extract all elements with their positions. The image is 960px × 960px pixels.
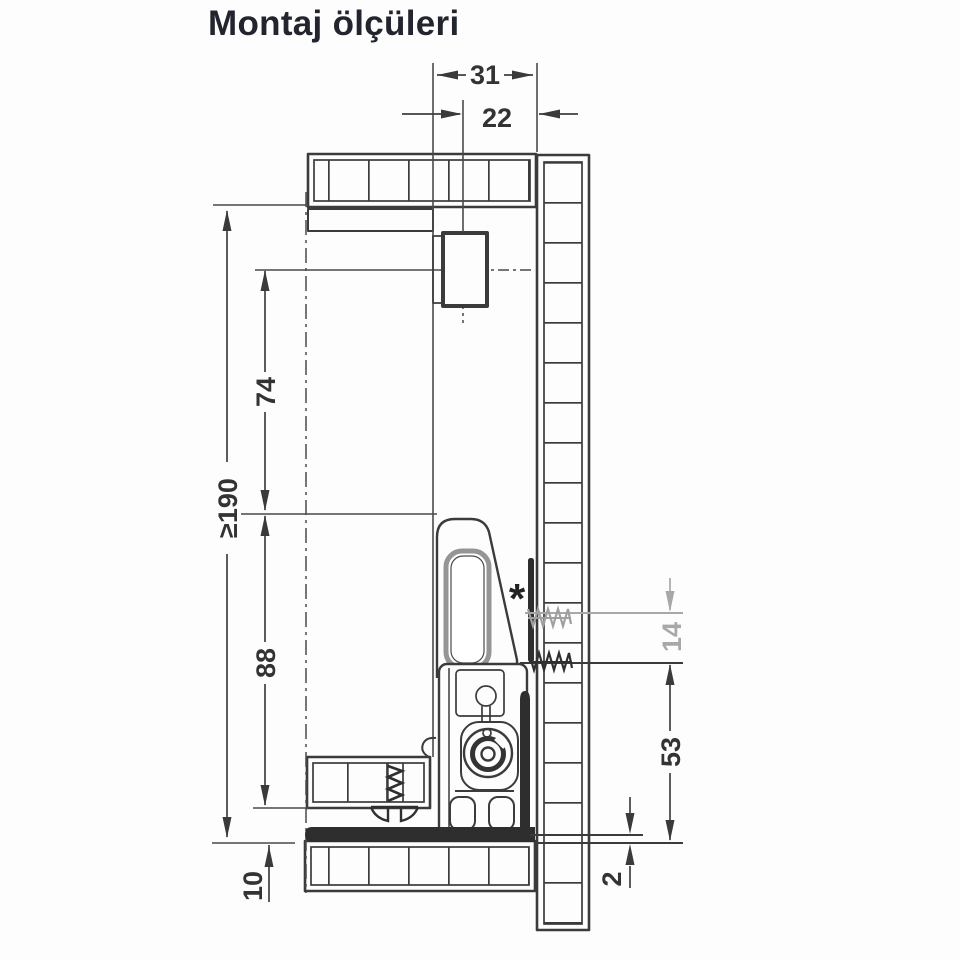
right-panel-hatch <box>544 162 582 924</box>
runner-foot-left <box>450 797 475 830</box>
arrow-up-icon <box>223 210 232 231</box>
footnote-asterisk: * <box>509 575 526 622</box>
drawer-bottom-panel-section <box>307 757 430 808</box>
arrow-up-icon <box>261 270 270 291</box>
runner-front-hook <box>422 738 436 757</box>
arrow-down-icon <box>261 490 270 511</box>
drawer-runner <box>422 519 527 838</box>
arrow-up-icon <box>626 844 635 865</box>
dimension-runner-height: 88 <box>251 515 281 806</box>
arrow-up-icon <box>265 846 274 867</box>
front-bracket <box>433 233 487 306</box>
arrow-down-icon <box>666 591 675 612</box>
dimension-top-offset: 22 <box>402 103 578 133</box>
dim-label-2: 2 <box>597 871 627 886</box>
arrow-left-icon <box>539 110 560 119</box>
runner-slot <box>446 551 489 668</box>
dim-label-31: 31 <box>470 60 500 90</box>
dimension-bottom-offset: 10 <box>238 845 274 902</box>
arrow-up-icon <box>666 664 675 685</box>
runner-foot-right <box>489 797 514 830</box>
arrow-down-icon <box>261 785 270 806</box>
dim-label-74: 74 <box>251 377 281 407</box>
dimension-bracket-height: 74 <box>251 270 281 511</box>
top-panel-section <box>308 154 536 207</box>
diagram-page: Montaj ölçüleri <box>0 0 960 960</box>
cabinet-bottom-panel-section <box>305 841 535 891</box>
dim-label-22: 22 <box>482 103 512 133</box>
bracket-body <box>443 233 487 306</box>
top-rail-strip-outline <box>308 209 433 231</box>
drawer-bottom-hatch <box>313 763 424 802</box>
dimension-top-width: 31 <box>437 60 533 90</box>
dimension-lower-screw-height: 53 <box>656 664 686 841</box>
dim-label-190: ≥190 <box>213 478 243 538</box>
arrow-right-icon <box>441 110 462 119</box>
arrow-left-icon <box>437 71 458 80</box>
dimension-screw-gap: 14 <box>657 578 687 652</box>
dim-label-14: 14 <box>657 622 687 652</box>
arrow-up-icon <box>261 515 270 536</box>
arrow-right-icon <box>512 71 533 80</box>
top-rail-strip <box>308 209 433 231</box>
top-panel-hatch <box>314 160 530 201</box>
dimension-interior-height: ≥190 <box>213 210 243 838</box>
arrow-down-icon <box>626 813 635 834</box>
right-panel-section <box>537 155 589 930</box>
dim-label-53: 53 <box>656 737 686 767</box>
arrow-down-icon <box>666 820 675 841</box>
mounting-dimensions-diagram: 31 22 ≥190 74 88 <box>0 0 960 960</box>
dim-label-10: 10 <box>238 871 268 901</box>
dim-label-88: 88 <box>251 648 281 678</box>
arrow-down-icon <box>223 817 232 838</box>
cabinet-bottom-hatch <box>311 847 529 885</box>
